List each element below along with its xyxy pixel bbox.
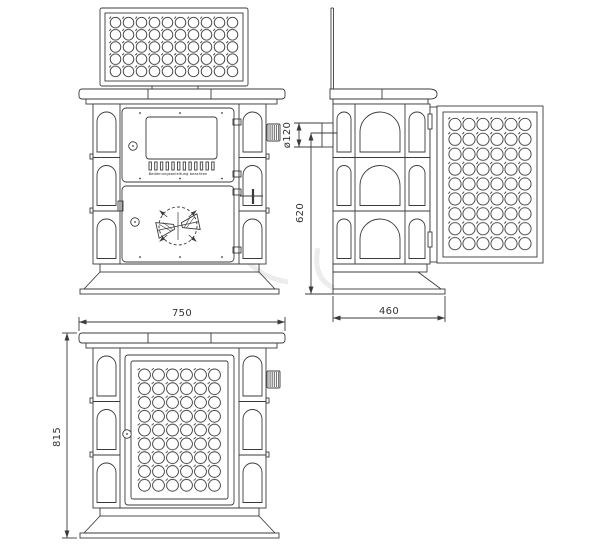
air-control-knob-closed <box>267 371 280 388</box>
top-grille-panel <box>100 8 248 90</box>
flue-stub <box>322 123 333 147</box>
firebox-door <box>122 108 241 182</box>
view-side <box>294 8 543 322</box>
view-front-closed <box>62 317 285 538</box>
dim-depth: 460 <box>379 306 399 317</box>
cornice-front-closed <box>79 333 285 348</box>
door-knob-flower-upper <box>129 142 137 151</box>
dim-flue-height: 620 <box>295 203 306 223</box>
view-front-top-open <box>79 8 285 294</box>
base-pedestal-closed <box>80 508 279 538</box>
grille-door-closed <box>125 355 234 505</box>
cornice-top <box>79 89 285 104</box>
base-side <box>333 264 445 294</box>
door-instruction-label: Bedienungsanleitung beachten <box>149 172 208 176</box>
dim-height: 815 <box>52 427 63 447</box>
dim-width: 750 <box>172 308 192 319</box>
heat-shield-back <box>331 8 334 89</box>
drawing-canvas: Bedienungsanleitung beachten ø120 620 46… <box>0 0 600 550</box>
stove-body-side <box>333 104 430 264</box>
door-knob-flower-lower <box>131 218 139 227</box>
base-pedestal <box>80 264 279 294</box>
grille-door-knob-flower <box>123 430 131 439</box>
dim-flue-diameter: ø120 <box>282 122 293 148</box>
technical-drawing: Bedienungsanleitung beachten ø120 620 46… <box>0 0 600 550</box>
grille-door-open <box>428 106 543 263</box>
air-control-knob <box>267 124 280 141</box>
cornice-side <box>330 89 437 104</box>
